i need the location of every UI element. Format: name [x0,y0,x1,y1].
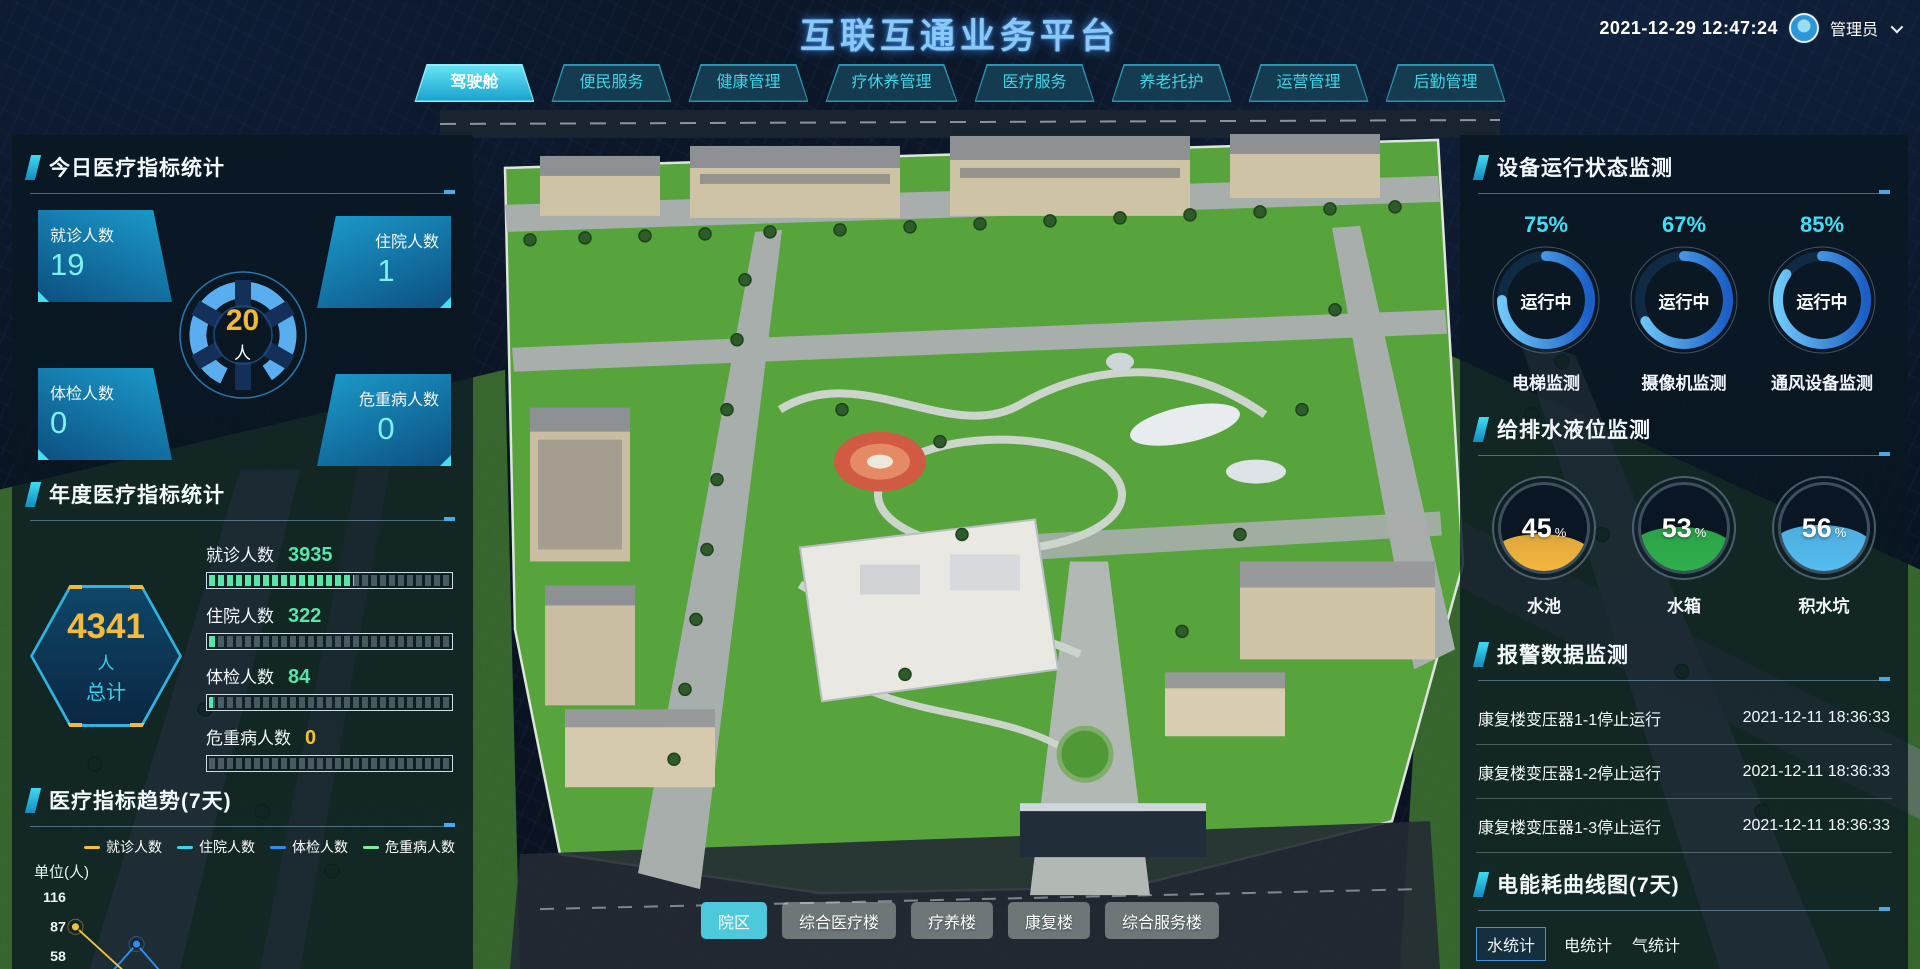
alarm-row[interactable]: 康复楼变压器1-2停止运行 2021-12-11 18:36:33 [1476,745,1892,799]
section-accent-icon [1473,642,1489,667]
water-gauges: 45% 水池 53% 水箱 56% 积水坑 [1476,466,1892,617]
stat-card-physical-exam: 体检人数 0 [38,368,172,460]
map-button-label: 综合医疗楼 [799,909,879,933]
level-pool: 45% 水池 [1484,476,1604,617]
level-unit: % [1555,525,1567,540]
dashboard-page: { "header": { "title": "互联互通业务平台", "date… [0,0,1920,969]
map-button-campus[interactable]: 院区 [701,902,767,939]
header: 互联互通业务平台 2021-12-29 12:47:24 管理员 驾驶舱 便民服… [0,0,1920,112]
section-title: 设备运行状态监测 [1497,152,1673,182]
alarm-list: 康复楼变压器1-1停止运行 2021-12-11 18:36:33 康复楼变压器… [1476,691,1892,853]
map-button-medical-building[interactable]: 综合医疗楼 [782,902,896,939]
map-button-label: 院区 [718,909,750,933]
level-caption: 水池 [1484,592,1604,617]
stat-card-outpatient: 就诊人数 19 [38,210,172,302]
section-accent-icon [25,788,41,813]
divider [1478,193,1890,194]
map-button-label: 疗养楼 [928,909,976,933]
level-tank: 53% 水箱 [1624,476,1744,617]
tab-label: 后勤管理 [1386,64,1506,102]
tab-label: 医疗服务 [975,64,1095,102]
stat-card-critical: 危重病人数 0 [317,374,451,466]
tab-recuperation-management[interactable]: 疗休养管理 [825,64,957,102]
progress-track [206,694,453,711]
stat-value: 19 [50,246,160,285]
section-accent-icon [1473,417,1489,442]
svg-text:58: 58 [50,949,66,965]
section-title: 报警数据监测 [1497,639,1629,669]
section-title: 今日医疗指标统计 [49,152,225,182]
progress-outpatient: 就诊人数3935 [206,541,453,589]
section-title: 医疗指标趋势(7天) [49,785,232,815]
section-alarm-data: 报警数据监测 [1476,639,1892,669]
tab-convenience-services[interactable]: 便民服务 [551,64,671,102]
section-accent-icon [1473,155,1489,180]
divider [1478,455,1890,456]
map-building-buttons: 院区 综合医疗楼 疗养楼 康复楼 综合服务楼 [701,902,1219,939]
gauge-ventilation: 85% 运行中 通风设备监测 [1754,208,1890,394]
section-accent-icon [1473,872,1489,897]
map-button-label: 综合服务楼 [1122,909,1202,933]
stat-label: 住院人数 [329,228,439,252]
level-caption: 积水坑 [1764,592,1884,617]
user-box: 2021-12-29 12:47:24 管理员 [1599,13,1900,43]
map-button-service-building[interactable]: 综合服务楼 [1105,902,1219,939]
today-total-gauge: 20 人 [168,260,318,410]
annual-stats: 4341 人 总计 就诊人数3935 住院人数322 体检人数84 危重病人数0 [28,531,457,772]
legend-label: 住院人数 [199,837,255,857]
section-accent-icon [25,482,41,507]
legend-inpatient[interactable]: 住院人数 [177,837,255,857]
energy-tabs: 水统计 电统计 气统计 [1476,927,1892,961]
tab-medical-services[interactable]: 医疗服务 [975,64,1095,102]
level-unit: % [1835,525,1847,540]
tab-label: 健康管理 [688,64,808,102]
progress-physical-exam: 体检人数84 [206,663,453,711]
trend-ylabel: 单位(人) [34,861,457,882]
trend-chart: 116875829012-2312-2412-2512-2612-2712-28… [28,882,457,969]
gauge-percent: 75% [1478,212,1614,238]
trend-legend: 就诊人数 住院人数 体检人数 危重病人数 [28,837,457,857]
tab-label: 疗休养管理 [825,64,957,102]
level-value: 53 [1662,513,1692,544]
running-track [834,432,926,492]
gauge-elevator: 75% 运行中 电梯监测 [1478,208,1614,394]
progress-critical: 危重病人数0 [206,724,453,772]
gauge-status: 运行中 [1766,244,1878,356]
progress-track [206,572,453,589]
tab-health-management[interactable]: 健康管理 [688,64,808,102]
section-annual-medical-stats: 年度医疗指标统计 [28,479,457,509]
tab-label: 驾驶舱 [414,64,534,102]
alarm-row[interactable]: 康复楼变压器1-3停止运行 2021-12-11 18:36:33 [1476,799,1892,853]
svg-text:116: 116 [43,890,66,906]
annual-total-label: 总计 [86,676,126,705]
divider [30,520,455,521]
gauge-caption: 电梯监测 [1478,369,1614,394]
annual-total-unit: 人 [98,649,115,674]
section-medical-trend: 医疗指标趋势(7天) [28,785,457,815]
datetime: 2021-12-29 12:47:24 [1599,18,1778,39]
section-water-level: 给排水液位监测 [1476,414,1892,444]
tab-logistics-management[interactable]: 后勤管理 [1386,64,1506,102]
tab-label: 养老托护 [1112,64,1232,102]
divider [30,826,455,827]
alarm-text: 康复楼变压器1-1停止运行 [1478,706,1661,730]
tab-cockpit[interactable]: 驾驶舱 [414,64,534,102]
map-button-rehab-building[interactable]: 康复楼 [1008,902,1090,939]
stat-label: 危重病人数 [329,386,439,410]
section-accent-icon [25,155,41,180]
gauge-percent: 67% [1616,212,1752,238]
svg-text:87: 87 [50,920,66,936]
bar-value: 0 [305,727,316,750]
gauge-caption: 摄像机监测 [1616,369,1752,394]
bar-value: 3935 [288,544,333,567]
gauge-status: 运行中 [1490,244,1602,356]
avatar[interactable] [1789,13,1819,43]
bar-label: 危重病人数 [206,724,291,749]
tab-elderly-care[interactable]: 养老托护 [1112,64,1232,102]
stat-label: 体检人数 [50,380,160,404]
gauge-caption: 通风设备监测 [1754,369,1890,394]
level-value: 45 [1522,513,1552,544]
map-button-label: 康复楼 [1025,909,1073,933]
bar-value: 322 [288,605,321,628]
divider [1478,680,1890,681]
stat-value: 1 [329,252,439,291]
legend-dash-icon [363,846,379,849]
alarm-text: 康复楼变压器1-3停止运行 [1478,814,1661,838]
legend-dash-icon [177,846,193,849]
tab-label: 运营管理 [1249,64,1369,102]
device-gauges: 75% 运行中 电梯监测 67% 运行中 摄像机监测 [1476,204,1892,394]
section-device-status: 设备运行状态监测 [1476,152,1892,182]
gauge-status: 运行中 [1628,244,1740,356]
legend-label: 体检人数 [292,837,348,857]
legend-dash-icon [84,846,100,849]
today-stats-grid: 就诊人数 19 住院人数 1 体检人数 0 危重病人数 0 [28,204,457,466]
section-title: 年度医疗指标统计 [49,479,225,509]
annual-total-value: 4341 [67,607,145,647]
stat-value: 0 [329,410,439,449]
gauge-percent: 85% [1754,212,1890,238]
tab-electricity-stats[interactable]: 电统计 [1562,928,1614,960]
user-name[interactable]: 管理员 [1830,16,1878,40]
bar-value: 84 [288,666,310,689]
right-panel: 设备运行状态监测 75% 运行中 电梯监测 67% [1460,135,1908,969]
annual-total-hexagon: 4341 人 总计 [30,585,192,772]
section-energy-curve: 电能耗曲线图(7天) [1476,869,1892,899]
stat-label: 就诊人数 [50,222,160,246]
bar-label: 体检人数 [206,663,274,688]
map-button-recuperation-building[interactable]: 疗养楼 [911,902,993,939]
alarm-time: 2021-12-11 18:36:33 [1743,709,1890,727]
alarm-text: 康复楼变压器1-2停止运行 [1478,760,1661,784]
nav-tabs: 驾驶舱 便民服务 健康管理 疗休养管理 医疗服务 养老托护 运营管理 后勤管理 [0,64,1920,102]
gauge-camera: 67% 运行中 摄像机监测 [1616,208,1752,394]
progress-inpatient: 住院人数322 [206,602,453,650]
section-title: 电能耗曲线图(7天) [1497,869,1680,899]
progress-track [206,755,453,772]
annual-bars: 就诊人数3935 住院人数322 体检人数84 危重病人数0 [192,535,455,772]
divider [30,193,455,194]
alarm-time: 2021-12-11 18:36:33 [1743,763,1890,781]
tab-water-stats[interactable]: 水统计 [1476,927,1546,961]
today-total-unit: 人 [234,339,251,364]
tab-label: 便民服务 [551,64,671,102]
alarm-time: 2021-12-11 18:36:33 [1743,817,1890,835]
section-today-medical-stats: 今日医疗指标统计 [28,152,457,182]
divider [1478,910,1890,911]
stat-card-inpatient: 住院人数 1 [317,216,451,308]
level-caption: 水箱 [1624,592,1744,617]
legend-physical-exam[interactable]: 体检人数 [270,837,348,857]
bar-label: 就诊人数 [206,541,274,566]
legend-critical[interactable]: 危重病人数 [363,837,455,857]
today-total-value: 20 [226,306,259,336]
tab-operation-management[interactable]: 运营管理 [1249,64,1369,102]
gate-building [1020,803,1206,857]
legend-outpatient[interactable]: 就诊人数 [84,837,162,857]
bar-label: 住院人数 [206,602,274,627]
progress-track [206,633,453,650]
stat-value: 0 [50,404,160,443]
level-value: 56 [1802,513,1832,544]
legend-dash-icon [270,846,286,849]
level-sump: 56% 积水坑 [1764,476,1884,617]
level-unit: % [1695,525,1707,540]
alarm-row[interactable]: 康复楼变压器1-1停止运行 2021-12-11 18:36:33 [1476,691,1892,745]
tab-gas-stats[interactable]: 气统计 [1630,928,1682,960]
legend-label: 就诊人数 [106,837,162,857]
legend-label: 危重病人数 [385,837,455,857]
left-panel: 今日医疗指标统计 就诊人数 19 住院人数 1 体检人数 0 危重病人数 0 [12,135,473,969]
section-title: 给排水液位监测 [1497,414,1651,444]
